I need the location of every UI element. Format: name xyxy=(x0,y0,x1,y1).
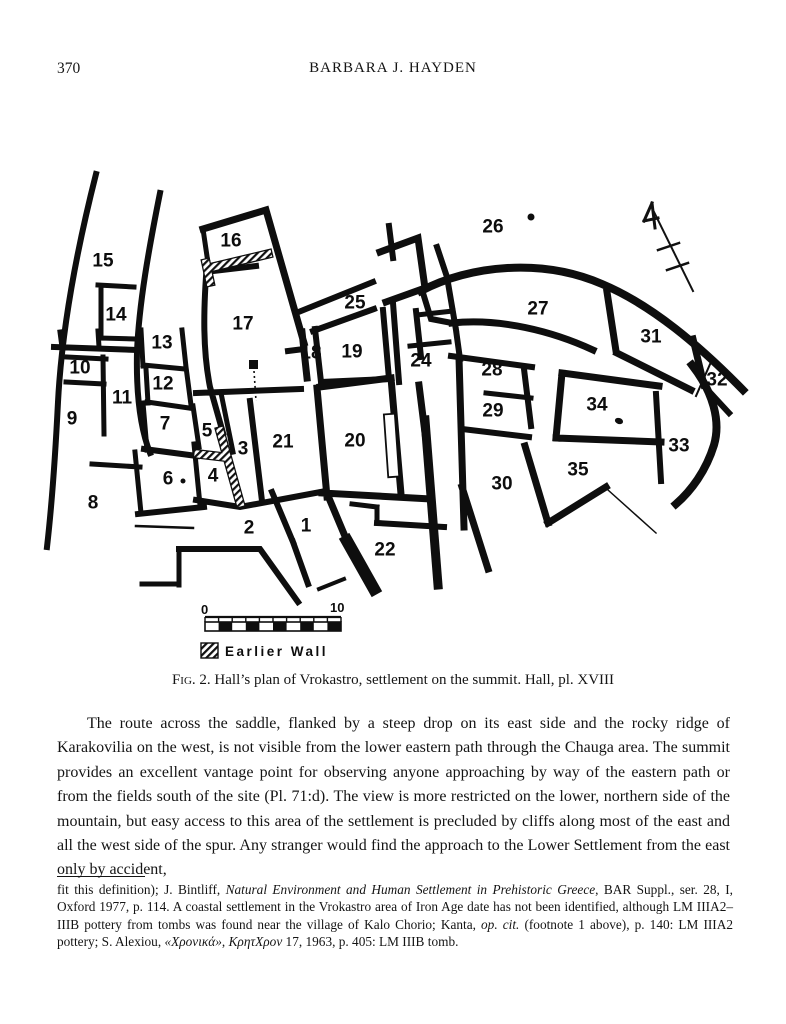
room-number: 1 xyxy=(301,516,312,537)
room-number: 11 xyxy=(112,388,133,409)
room-number: 13 xyxy=(151,333,172,354)
room-number: 2 xyxy=(244,518,255,539)
footnote-separator xyxy=(57,876,145,877)
footnote-segment: 17, 1963, p. 405: LM IIIB tomb. xyxy=(282,934,458,949)
room-number: 22 xyxy=(374,540,395,561)
room-number: 4 xyxy=(208,466,219,487)
room-number: 20 xyxy=(344,431,365,452)
legend-earlier-wall: Earlier Wall xyxy=(201,643,328,659)
room-number: 26 xyxy=(482,217,503,238)
room-number: 25 xyxy=(344,293,366,314)
room-number: 24 xyxy=(410,351,432,372)
figure-caption-text: Hall’s plan of Vrokastro, settlement on … xyxy=(211,672,614,688)
footnote-segment: «Χρονικά» xyxy=(164,934,221,949)
room-number: 27 xyxy=(527,299,548,320)
dot-room-6 xyxy=(181,479,186,484)
room-number: 3 xyxy=(238,439,249,460)
legend-label: Earlier Wall xyxy=(225,644,328,659)
footnote-segment: Natural Environment and Human Settlement… xyxy=(226,882,596,897)
plan-walls xyxy=(47,174,743,602)
body-paragraph: The route across the saddle, flanked by … xyxy=(57,712,730,883)
footnote-segment: op. cit. xyxy=(481,917,519,932)
room-number: 33 xyxy=(668,436,689,457)
figure-plan: 0 10 Earlier Wall 1234567891011121314151… xyxy=(0,0,786,700)
dot-room-26 xyxy=(528,214,535,221)
room-number: 18 xyxy=(300,343,321,364)
room-number: 15 xyxy=(92,251,114,272)
room-number: 8 xyxy=(88,493,99,514)
room-number: 17 xyxy=(232,314,253,335)
room-number: 6 xyxy=(163,469,174,490)
footnote-segment: fit this definition); J. Bintliff, xyxy=(57,882,226,897)
room-number: 19 xyxy=(341,342,362,363)
dot-room-34 xyxy=(614,417,624,426)
scale-bar: 0 10 xyxy=(201,600,344,631)
room-number: 28 xyxy=(481,360,502,381)
room-number: 21 xyxy=(272,432,294,453)
room-number: 29 xyxy=(482,401,503,422)
scale-end-label: 10 xyxy=(330,600,344,615)
room-number: 7 xyxy=(160,414,171,435)
room-number: 34 xyxy=(586,395,608,416)
earlier-wall-swatch-icon xyxy=(201,643,218,658)
room-number: 32 xyxy=(706,370,727,391)
room-number: 31 xyxy=(640,327,662,348)
footnote-segment: , xyxy=(222,934,229,949)
room-number: 10 xyxy=(69,358,90,379)
figure-caption-label: Fig. 2. xyxy=(172,672,211,688)
journal-page: 370 BARBARA J. HAYDEN xyxy=(0,0,786,1024)
north-arrow-icon xyxy=(644,203,693,291)
room-number: 9 xyxy=(67,409,78,430)
scale-start-label: 0 xyxy=(201,602,208,617)
footnote-segment: ΚρητΧρον xyxy=(229,934,283,949)
room-number: 5 xyxy=(202,421,213,442)
room-number: 30 xyxy=(491,474,512,495)
room-number: 16 xyxy=(220,231,241,252)
room-number: 14 xyxy=(105,305,127,326)
footnote-text: fit this definition); J. Bintliff, Natur… xyxy=(57,881,733,951)
site-plan-figure: 0 10 Earlier Wall 1234567891011121314151… xyxy=(0,0,786,700)
figure-caption: Fig. 2. Hall’s plan of Vrokastro, settle… xyxy=(0,672,786,689)
room-number: 35 xyxy=(567,460,589,481)
room-number: 12 xyxy=(152,374,173,395)
